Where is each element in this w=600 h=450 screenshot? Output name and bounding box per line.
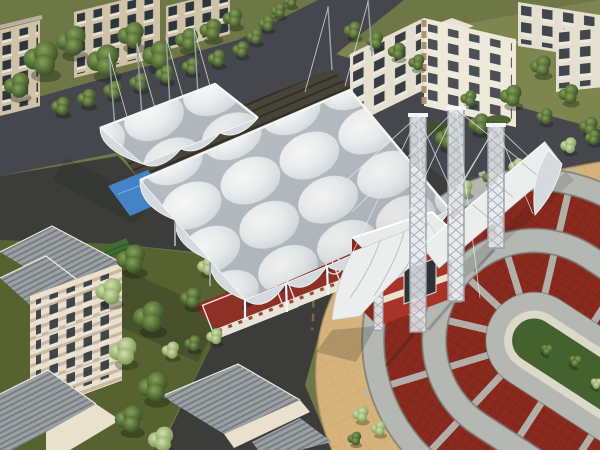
render-viewport (0, 0, 600, 450)
mast-tower (408, 113, 428, 332)
architectural-render (0, 0, 600, 450)
facade (556, 25, 600, 92)
